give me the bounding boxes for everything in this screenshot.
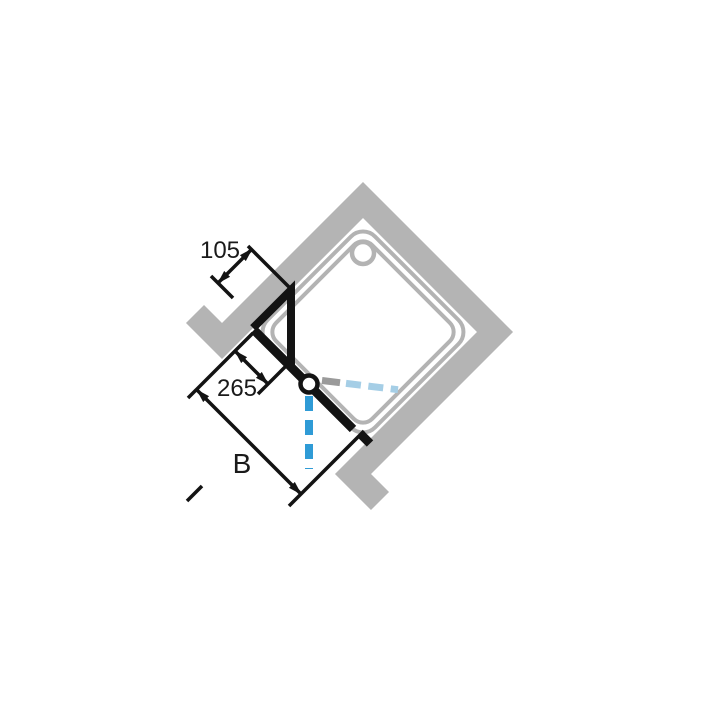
dim-265-label: 265 <box>217 375 257 402</box>
door-end-profile <box>361 435 370 444</box>
dim-105-label: 105 <box>200 237 240 264</box>
hinge-pivot <box>301 376 318 393</box>
dim-b-end-tick <box>187 486 202 501</box>
shower-door-plan-diagram: 105 265 B <box>0 0 720 720</box>
dim-b-label: B <box>233 448 252 479</box>
diagram-page: 105 265 B <box>0 0 720 720</box>
drain-circle <box>352 242 374 264</box>
swing-inward-first-dash <box>322 381 340 383</box>
